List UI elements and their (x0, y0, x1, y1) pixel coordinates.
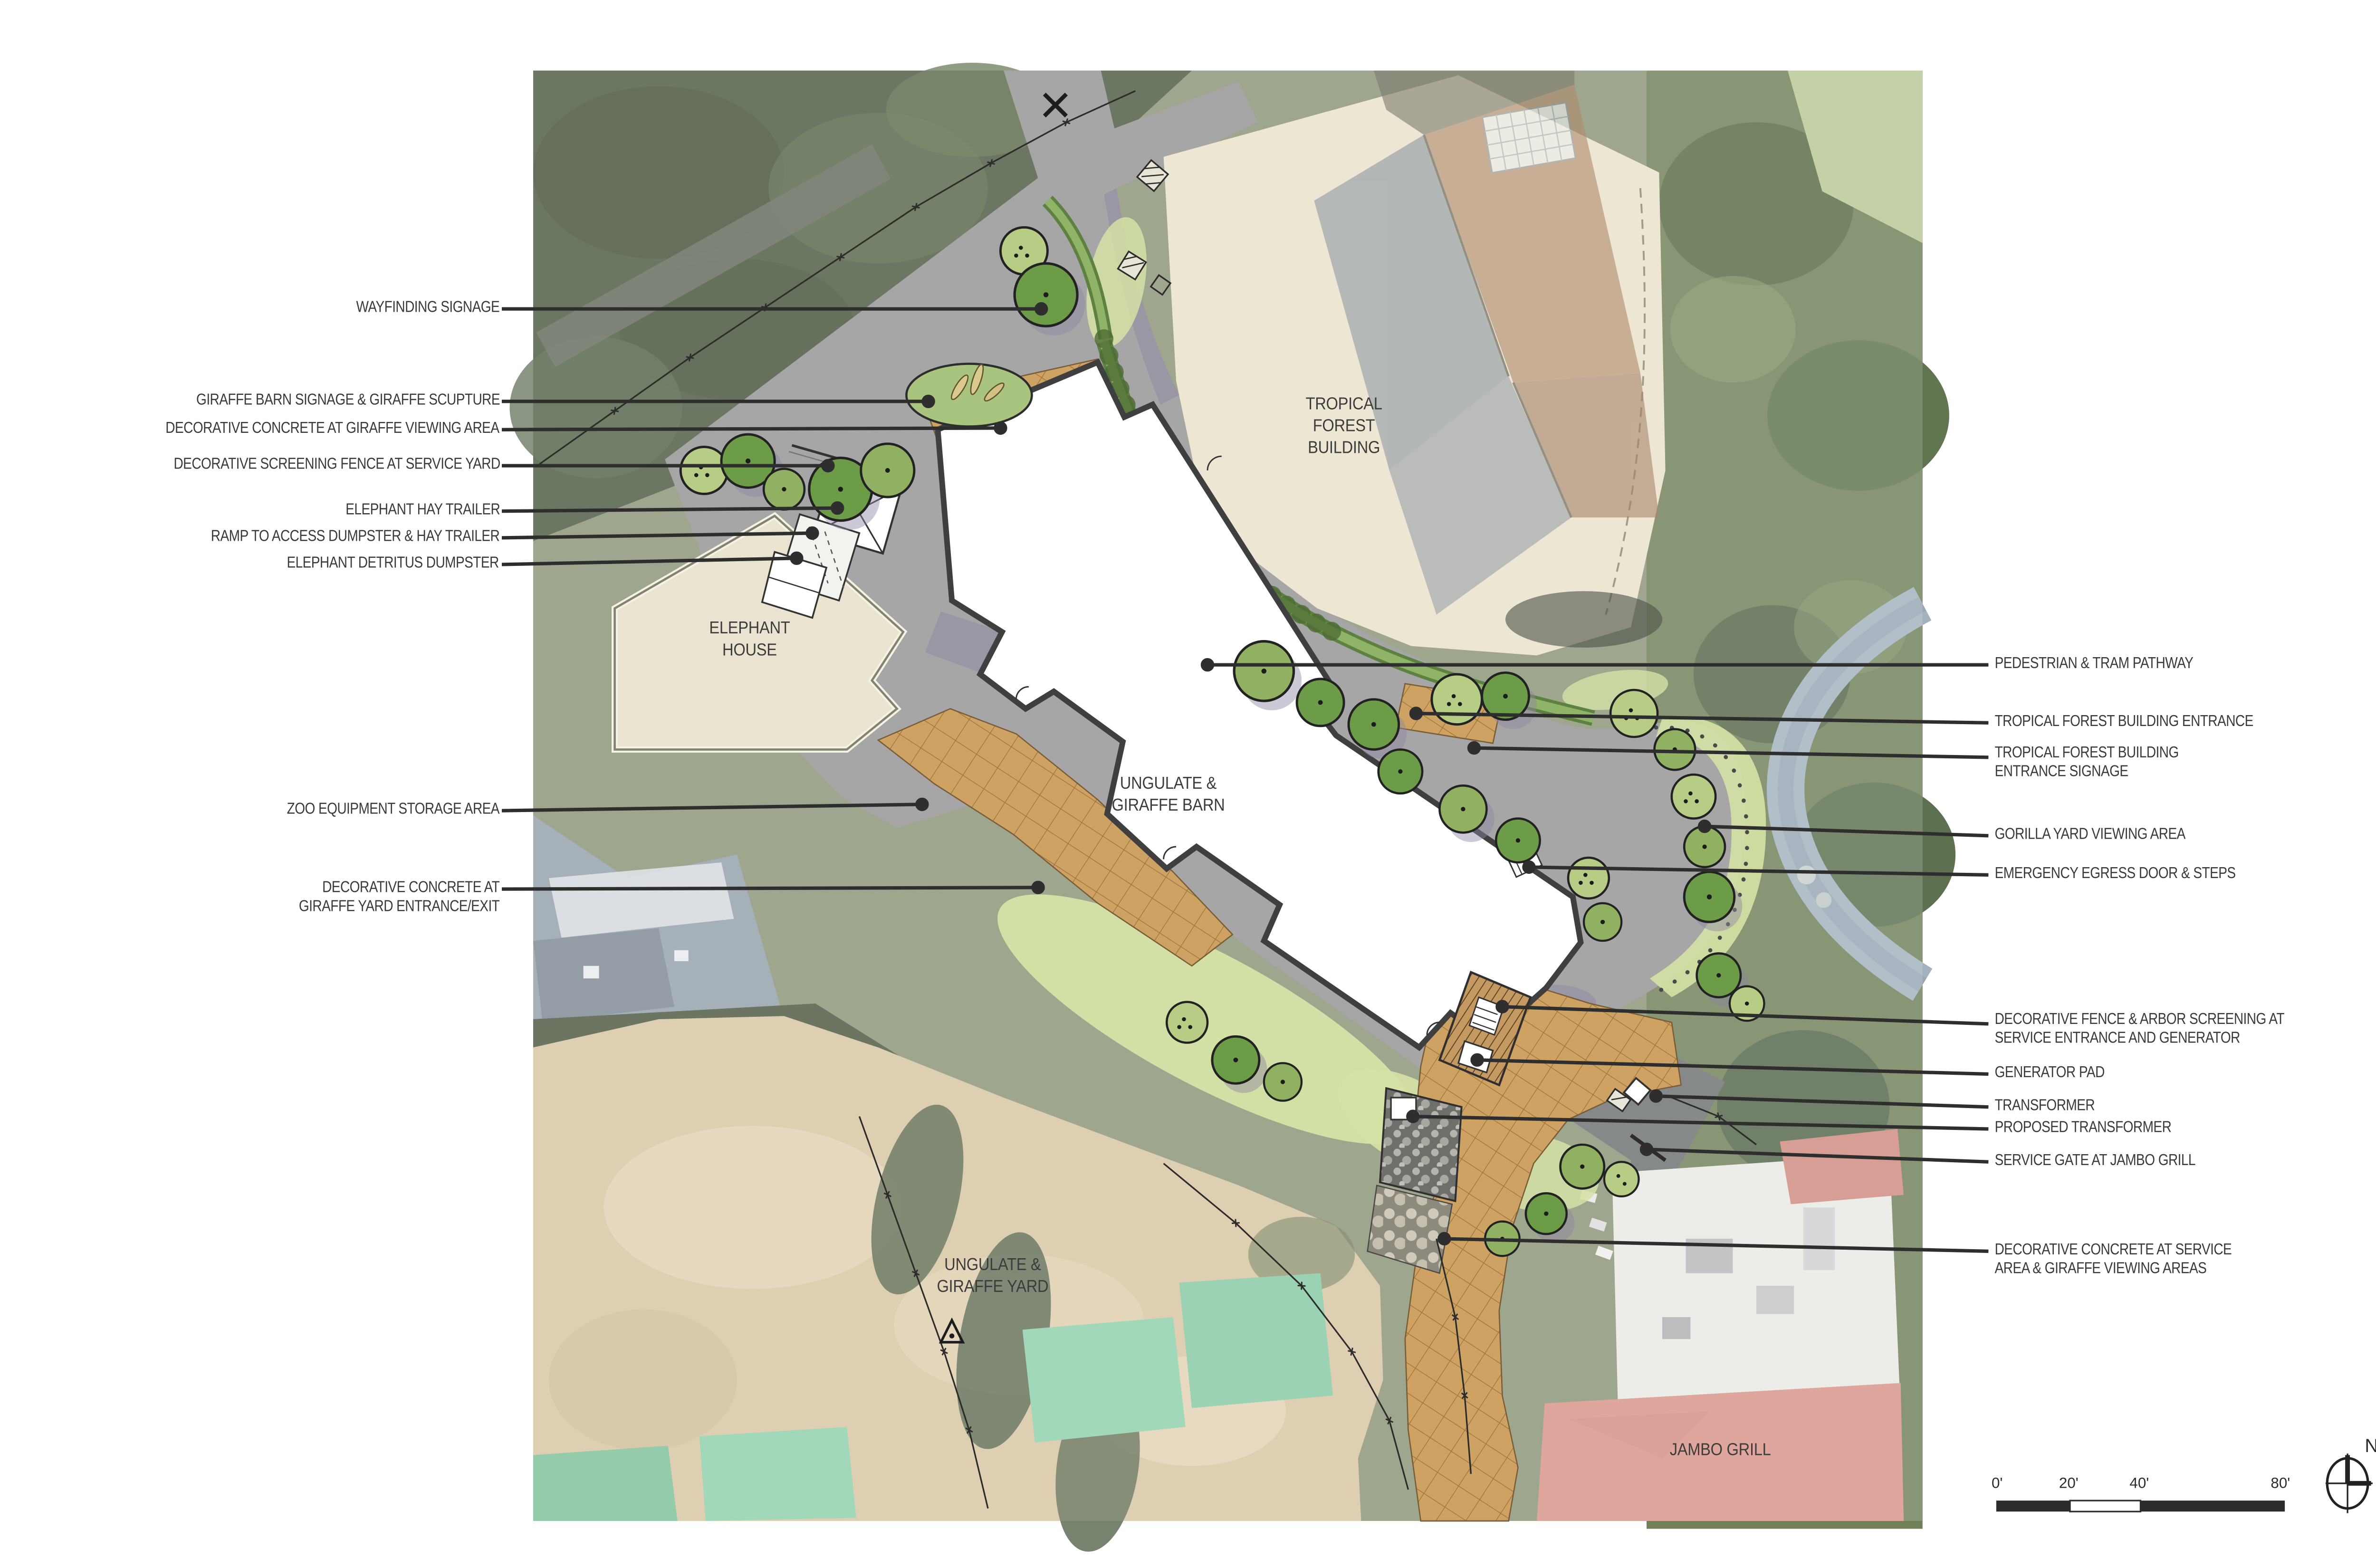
giraffe-sculpture-mound (906, 363, 1032, 427)
callout-concrete-yard-entrance: DECORATIVE CONCRETE AT GIRAFFE YARD ENTR… (299, 880, 499, 917)
label-jambo-grill: JAMBO GRILL (1579, 1439, 1861, 1461)
scale-tick-0: 0' (1992, 1475, 2002, 1492)
scale-bar (1996, 1501, 2285, 1511)
callout-emergency-egress: EMERGENCY EGRESS DOOR & STEPS (1995, 866, 2236, 884)
callout-wayfinding-signage: WAYFINDING SIGNAGE (356, 299, 499, 318)
scale-tick-20: 20' (2059, 1475, 2079, 1492)
callout-tfb-entrance: TROPICAL FOREST BUILDING ENTRANCE (1995, 714, 2253, 732)
scale-tick-80: 80' (2271, 1475, 2290, 1492)
callout-screening-fence: DECORATIVE SCREENING FENCE AT SERVICE YA… (173, 456, 499, 475)
callout-pedestrian-tram-pathway: PEDESTRIAN & TRAM PATHWAY (1995, 655, 2194, 674)
callout-elephant-hay-trailer: ELEPHANT HAY TRAILER (345, 502, 499, 520)
callout-proposed-transformer: PROPOSED TRANSFORMER (1995, 1119, 2172, 1138)
callout-concrete-service-area: DECORATIVE CONCRETE AT SERVICE AREA & GI… (1995, 1242, 2232, 1279)
callout-gorilla-yard-viewing: GORILLA YARD VIEWING AREA (1995, 826, 2185, 845)
callout-fence-arbor-screening: DECORATIVE FENCE & ARBOR SCREENING AT SE… (1995, 1012, 2284, 1049)
callout-ramp-dumpster: RAMP TO ACCESS DUMPSTER & HAY TRAILER (211, 528, 499, 547)
callout-tfb-entrance-signage: TROPICAL FOREST BUILDING ENTRANCE SIGNAG… (1995, 745, 2179, 782)
callout-zoo-equipment-storage: ZOO EQUIPMENT STORAGE AREA (287, 801, 499, 820)
north-arrow-label: N (2365, 1435, 2376, 1457)
callout-transformer: TRANSFORMER (1995, 1098, 2095, 1116)
scale-tick-40: 40' (2129, 1475, 2149, 1492)
callout-generator-pad: GENERATOR PAD (1995, 1065, 2105, 1083)
label-ungulate-giraffe-barn: UNGULATE & GIRAFFE BARN (1027, 773, 1310, 817)
callout-decorative-concrete-viewing: DECORATIVE CONCRETE AT GIRAFFE VIEWING A… (166, 420, 499, 439)
label-ungulate-giraffe-yard: UNGULATE & GIRAFFE YARD (852, 1254, 1134, 1299)
site-plan-page: WAYFINDING SIGNAGE GIRAFFE BARN SIGNAGE … (0, 0, 2376, 1568)
north-arrow (2326, 1453, 2373, 1513)
callout-giraffe-barn-signage: GIRAFFE BARN SIGNAGE & GIRAFFE SCUPTURE (196, 392, 499, 411)
label-elephant-house: ELEPHANT HOUSE (608, 618, 891, 662)
callout-detritus-dumpster: ELEPHANT DETRITUS DUMPSTER (287, 555, 499, 574)
callout-service-gate: SERVICE GATE AT JAMBO GRILL (1995, 1153, 2195, 1171)
label-tropical-forest-building: TROPICAL FOREST BUILDING (1203, 393, 1485, 459)
